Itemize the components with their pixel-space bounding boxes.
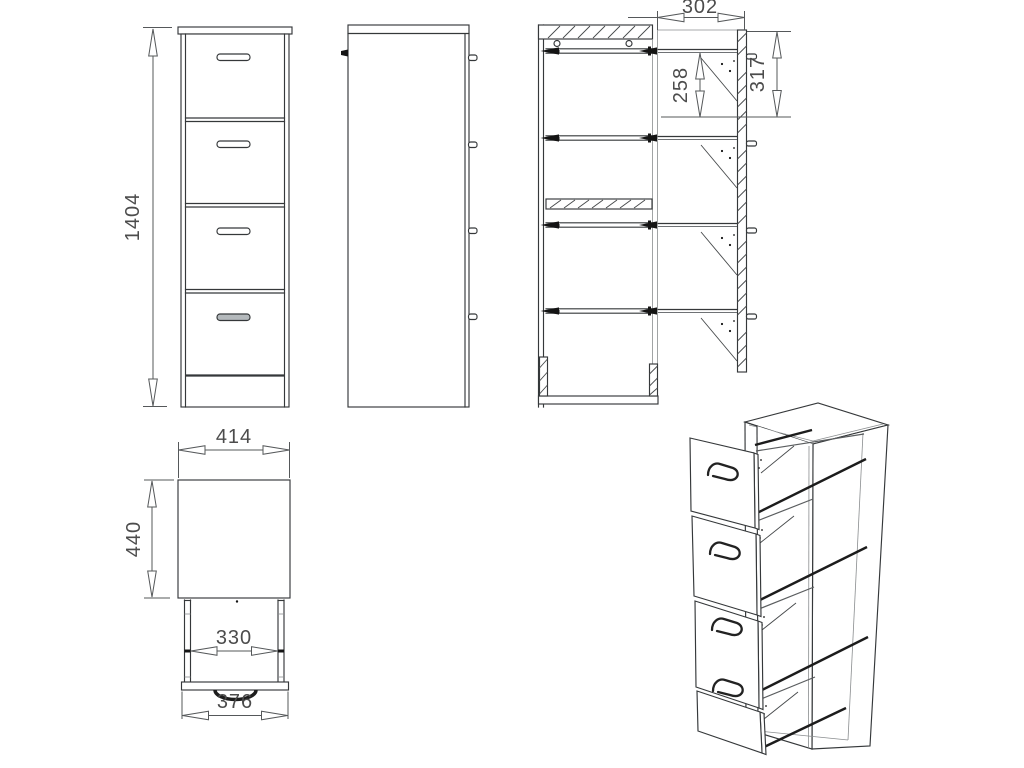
dim-label-drawer-front-width: 376 bbox=[217, 691, 253, 713]
dim-label-top-interior-height: 317 bbox=[747, 56, 769, 92]
handle-edge bbox=[469, 228, 478, 234]
drawing-canvas: 1404 bbox=[0, 0, 1024, 768]
dim-label-overall-height: 1404 bbox=[122, 193, 144, 242]
drawer-slide-rail bbox=[541, 134, 757, 189]
drawer-handle bbox=[217, 228, 250, 235]
handle-edge bbox=[469, 314, 478, 320]
handle-edge bbox=[469, 55, 478, 61]
drawer-handle bbox=[217, 141, 250, 148]
dim-label-drawer-inner-width: 330 bbox=[216, 627, 252, 649]
side-view bbox=[341, 25, 477, 407]
dimension-overall-depth: 440 bbox=[123, 480, 174, 598]
drawer-handle bbox=[217, 314, 250, 321]
dim-label-overall-depth: 440 bbox=[123, 521, 145, 557]
dimension-overall-height: 1404 bbox=[122, 28, 172, 407]
dim-label-overall-width: 414 bbox=[216, 426, 252, 448]
section-view: 302 258 317 bbox=[539, 0, 792, 407]
drawer-handle bbox=[217, 54, 250, 61]
plan-view: 414 440 bbox=[123, 426, 290, 720]
isometric-view bbox=[690, 403, 888, 755]
front-view: 1404 bbox=[122, 27, 292, 407]
dim-label-hanging-file-height: 258 bbox=[670, 67, 692, 103]
drawer-slide-rail bbox=[541, 307, 757, 362]
handle-edge bbox=[469, 142, 478, 148]
back-bracket bbox=[341, 50, 348, 57]
dimension-drawer-front-width: 376 bbox=[182, 691, 288, 720]
technical-drawing-filing-cabinet: 1404 bbox=[0, 0, 1024, 768]
drawer-slide-rail bbox=[541, 47, 757, 102]
dim-label-top-rail-depth: 302 bbox=[682, 0, 718, 18]
dimension-hanging-file-height: 258 bbox=[670, 53, 704, 117]
dimension-drawer-inner-width: 330 bbox=[191, 627, 279, 655]
drawer-slide-rail bbox=[541, 221, 757, 276]
iso-drawer-fronts bbox=[690, 438, 766, 755]
dimension-overall-width: 414 bbox=[178, 426, 290, 478]
